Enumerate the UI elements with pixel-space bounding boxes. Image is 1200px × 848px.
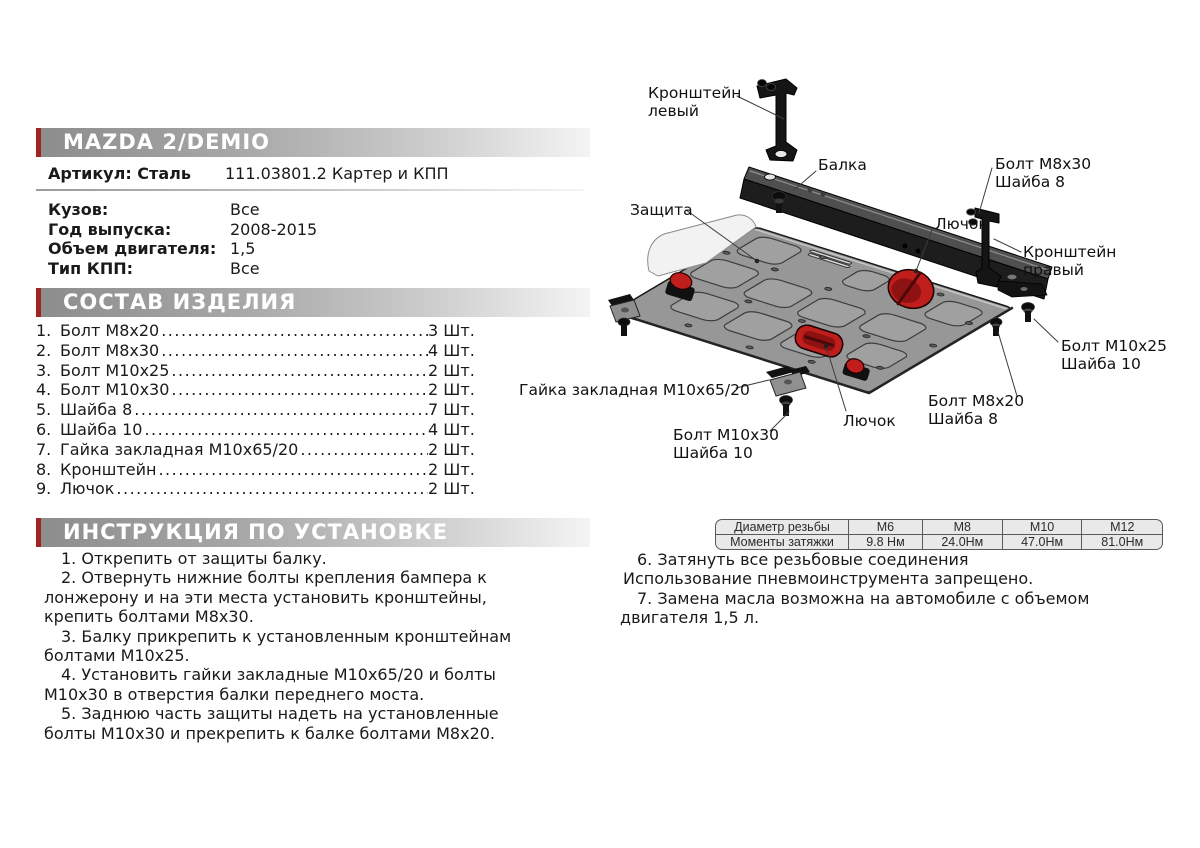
part-name: Лючок: [60, 479, 114, 499]
south-tab-group: [766, 366, 810, 416]
part-qty: 2 Шт.: [428, 440, 498, 460]
spec-list: Кузов:ВсеГод выпуска:2008-2015Объем двиг…: [48, 200, 468, 278]
instruction-step: 5. Заднюю часть защиты надеть на установ…: [44, 704, 552, 743]
part-row: 5.Шайба 8...............................…: [36, 400, 498, 420]
bracket-left-bolt-icon: [758, 80, 767, 87]
spec-label: Тип КПП:: [48, 259, 133, 278]
part-row: 8.Кронштейн.............................…: [36, 460, 498, 480]
bracket-left-part: [757, 79, 797, 161]
part-number: 1.: [36, 321, 60, 341]
instruction-step: 1. Открепить от защиты балку.: [44, 549, 552, 568]
part-name: Болт М10х30: [60, 380, 169, 400]
part-number: 7.: [36, 440, 60, 460]
part-number: 9.: [36, 479, 60, 499]
label-bolt-m8x20: Болт М8х20Шайба 8: [928, 392, 1024, 428]
dot-leader: ........................................…: [169, 380, 428, 400]
part-number: 2.: [36, 341, 60, 361]
instruction-step: 3. Балку прикрепить к установленным крон…: [44, 627, 552, 666]
part-name: Болт М8х30: [60, 341, 159, 361]
torque-table-row: Моменты затяжки9.8 Нм24.0Нм47.0Нм81.0Нм: [715, 534, 1163, 550]
part-qty: 2 Шт.: [428, 460, 498, 480]
bracket-left-bolt-icon: [767, 84, 776, 91]
part-name: Кронштейн: [60, 460, 156, 480]
label-kronshtein-right: Кронштейнправый: [1023, 243, 1116, 279]
bolt-m10x25-icon: [1022, 303, 1035, 323]
label-lyuchok-top-dot: [914, 269, 919, 274]
spec-value: Все: [230, 259, 260, 279]
label-bolt-m8x20-leader: [998, 332, 1017, 396]
label-lyuchok-top: Лючок: [935, 215, 988, 233]
instruction-step: Использование пневмоинструмента запрещен…: [620, 569, 1092, 588]
label-bolt-m8x30: Болт М8х30Шайба 8: [995, 155, 1091, 191]
part-qty: 2 Шт.: [428, 479, 498, 499]
spec-row: Объем двигателя:1,5: [48, 239, 468, 259]
spec-label: Год выпуска:: [48, 220, 171, 239]
part-name: Гайка закладная М10х65/20: [60, 440, 298, 460]
dot-leader: ........................................…: [142, 420, 428, 440]
instructions-left-column: 1. Открепить от защиты балку.2. Отвернут…: [44, 549, 552, 743]
part-row: 1.Болт М8х20............................…: [36, 321, 498, 341]
part-number: 5.: [36, 400, 60, 420]
label-zashchita-dot: [755, 259, 760, 264]
part-qty: 4 Шт.: [428, 420, 498, 440]
part-row: 2.Болт М8х30............................…: [36, 341, 498, 361]
bolt-m10x30-icon: [780, 396, 793, 417]
torque-cell: 24.0Нм: [922, 534, 1002, 550]
instruction-step: 4. Установить гайки закладные М10х65/20 …: [44, 665, 552, 704]
part-row: 6.Шайба 10..............................…: [36, 420, 498, 440]
instruction-step: 7. Замена масла возможна на автомобиле с…: [620, 589, 1092, 628]
part-name: Шайба 8: [60, 400, 132, 420]
instruction-sheet: MAZDA 2/DEMIO Артикул: Сталь 111.03801.2…: [0, 0, 1200, 848]
label-bolt-m10x30: Болт М10х30Шайба 10: [673, 426, 779, 462]
label-lyuchok-bottom-dot: [824, 344, 829, 349]
label-bolt-m10x25: Болт М10х25Шайба 10: [1061, 337, 1167, 373]
spec-label: Объем двигателя:: [48, 239, 216, 258]
spec-row: Кузов:Все: [48, 200, 468, 220]
label-bolt-m10x25-leader: [1034, 319, 1058, 342]
torque-cell: 81.0Нм: [1081, 534, 1163, 550]
dot-leader: ........................................…: [114, 479, 428, 499]
part-number: 8.: [36, 460, 60, 480]
part-qty: 2 Шт.: [428, 361, 498, 381]
label-kronshtein-left: Кронштейнлевый: [648, 84, 741, 120]
instructions-right-column: 6. Затянуть все резьбовые соединенияИспо…: [620, 550, 1092, 628]
spec-label: Кузов:: [48, 200, 108, 219]
dot-leader: ........................................…: [159, 341, 428, 361]
part-qty: 2 Шт.: [428, 380, 498, 400]
part-row: 7.Гайка закладная М10х65/20.............…: [36, 440, 498, 460]
spec-row: Тип КПП:Все: [48, 259, 468, 279]
parts-list: 1.Болт М8х20............................…: [36, 321, 498, 499]
label-gaika: Гайка закладная М10х65/20: [519, 381, 750, 399]
dot-leader: ........................................…: [156, 460, 428, 480]
torque-cell: 9.8 Нм: [848, 534, 922, 550]
instruction-step: 6. Затянуть все резьбовые соединения: [620, 550, 1092, 569]
label-balka: Балка: [818, 156, 867, 174]
part-number: 3.: [36, 361, 60, 381]
part-row: 9.Лючок.................................…: [36, 479, 498, 499]
torque-row-label: Моменты затяжки: [715, 534, 848, 550]
torque-cell: 47.0Нм: [1002, 534, 1082, 550]
bracket-left-hole: [775, 151, 787, 158]
part-qty: 3 Шт.: [428, 321, 498, 341]
spec-value: 2008-2015: [230, 220, 317, 240]
label-bolt-m8x30-leader: [979, 168, 992, 213]
part-qty: 4 Шт.: [428, 341, 498, 361]
spec-row: Год выпуска:2008-2015: [48, 220, 468, 240]
part-number: 4.: [36, 380, 60, 400]
part-row: 4.Болт М10х30...........................…: [36, 380, 498, 400]
dot-leader: ........................................…: [298, 440, 428, 460]
bolt-m8x20-icon: [990, 318, 1002, 336]
article-value: 111.03801.2 Картер и КПП: [225, 164, 449, 183]
part-name: Болт М10х25: [60, 361, 169, 381]
dot-leader: ........................................…: [169, 361, 428, 381]
part-qty: 7 Шт.: [428, 400, 498, 420]
part-row: 3.Болт М10х25...........................…: [36, 361, 498, 381]
part-number: 6.: [36, 420, 60, 440]
bolt-m10x30-icon: [618, 318, 630, 336]
instruction-step: 2. Отвернуть нижние болты крепления бамп…: [44, 568, 552, 626]
label-zashchita: Защита: [630, 201, 693, 219]
spec-value: 1,5: [230, 239, 255, 259]
dot-leader: ........................................…: [159, 321, 428, 341]
part-name: Шайба 10: [60, 420, 142, 440]
dot-leader: ........................................…: [132, 400, 428, 420]
spec-value: Все: [230, 200, 260, 220]
diagram: КронштейнлевыйБалкаБолт М8х30Шайба 8Крон…: [500, 55, 1200, 525]
part-name: Болт М8х20: [60, 321, 159, 341]
article-label: Артикул: Сталь: [48, 164, 191, 183]
label-lyuchok-bottom: Лючок: [843, 412, 896, 430]
